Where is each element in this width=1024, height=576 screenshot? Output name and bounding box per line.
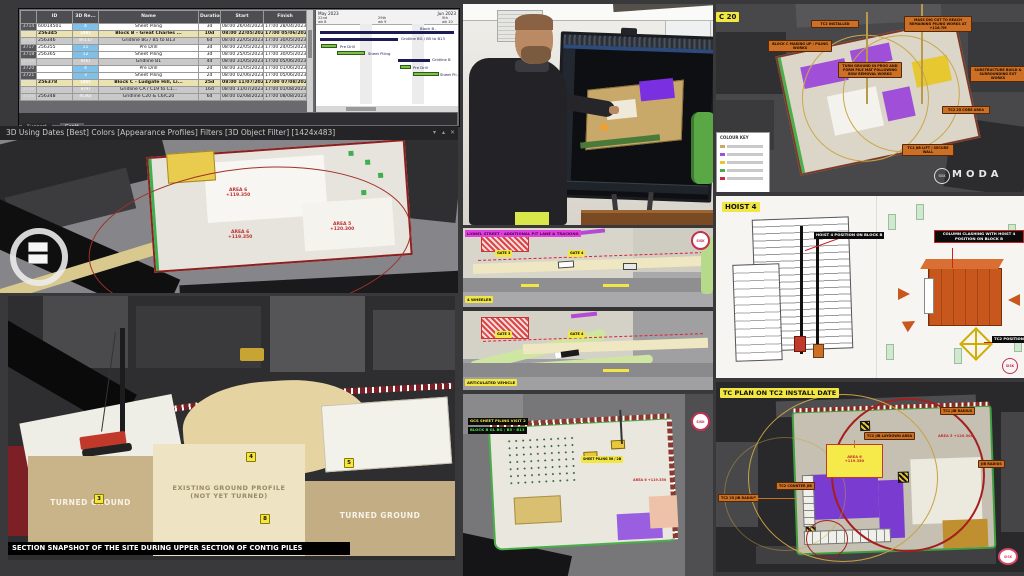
gantt-chart: May 2023 Jun 2023 22ndwk 8 29thwk 9 5thw…	[315, 10, 458, 112]
area-label: AREA 5+120.300	[330, 222, 354, 232]
ground-label: TURNED GROUND	[305, 511, 455, 520]
person-torso	[469, 58, 567, 225]
crane-mast	[866, 12, 868, 104]
plan-banner: LIONEL STREET - ADDITIONAL PIT LANE & TR…	[465, 230, 581, 237]
gantt-tick: 22ndwk 8	[318, 16, 327, 24]
piling-rig	[611, 440, 625, 450]
collage-root: ID 3D Re... Name Duration Start Finish 3…	[0, 0, 1024, 576]
road-marking	[521, 284, 539, 287]
gantt-bar-task[interactable]	[321, 44, 337, 48]
key-line	[727, 153, 763, 156]
visit-label: GCS SHEET PILING VISIT 2	[468, 418, 528, 425]
expand-icon[interactable]: ▴	[442, 126, 445, 140]
hi-vis-trousers	[515, 212, 549, 225]
gantt-bar-summary[interactable]	[320, 38, 398, 41]
gate-label: GATE 3	[495, 331, 512, 338]
gate-label: GATE 4	[568, 250, 585, 257]
pile-mat	[514, 495, 562, 524]
viewport-caption: 3D Using Dates [Best] Colors [Appearance…	[6, 126, 335, 140]
photo-presentation	[463, 4, 713, 225]
road-shape	[1001, 412, 1024, 532]
sisk-ring-logo: SISK	[934, 168, 950, 184]
touchscreen-display	[555, 31, 713, 202]
yellow-laydown-box: AREA 6 +119.350	[826, 444, 883, 478]
nav-button[interactable]	[28, 242, 48, 252]
annotation-label: MASS DIG CUT TO REACH REMAINING PILING W…	[904, 16, 972, 32]
vehicle-type-label: 4 WHEELER	[465, 296, 493, 303]
sisk-logo: SISK	[998, 548, 1018, 565]
plant-dot	[365, 160, 370, 165]
key-line	[727, 177, 763, 180]
schedule-table: ID 3D Re... Name Duration Start Finish 3…	[20, 10, 307, 101]
desk	[581, 210, 713, 225]
plan-title: TC PLAN ON TC2 INSTALL DATE	[720, 388, 839, 398]
column-post	[916, 204, 924, 220]
key-line	[727, 145, 763, 148]
gantt-bar-task[interactable]	[337, 51, 365, 55]
column-post	[888, 214, 896, 230]
tc2-crane-base	[959, 327, 993, 361]
road-marking	[603, 369, 629, 372]
task-row: 3722256378(40)Block C - Ludgate Hill, Li…	[21, 80, 307, 87]
section-caption: SECTION SNAPSHOT OF THE SITE DURING UPPE…	[8, 542, 350, 555]
area-label: AREA 6+119.350	[226, 188, 250, 198]
person-hair	[515, 14, 553, 30]
column-header-finish[interactable]: Finish	[264, 11, 307, 24]
gantt-scrollbar-horizontal[interactable]	[316, 106, 458, 112]
truck-cab	[555, 352, 562, 359]
task-row: 37262563484(36)Gridline C20 & C6/C206d08…	[21, 94, 307, 101]
annotation-label: TC2 JIB LAYDOWN AREA	[864, 432, 915, 440]
turned-ground-left: TURNED GROUND	[28, 456, 153, 552]
piling-label: SHEET PILING 56 / 2B	[581, 456, 623, 463]
screen-purple-zone	[639, 78, 675, 101]
enclosure-top	[920, 259, 1004, 269]
existing-ground-center: EXISTING GROUND PROFILE (NOT YET TURNED)	[153, 444, 305, 556]
column-header-id[interactable]: ID	[37, 11, 73, 24]
viewport-caption-bar: 3D Using Dates [Best] Colors [Appearance…	[0, 126, 458, 140]
annotation-label: TC2 25 JIB RADIUS	[718, 494, 759, 502]
corner-cell	[21, 11, 37, 24]
building-block	[270, 296, 365, 372]
scrollbar-thumb[interactable]	[308, 30, 312, 58]
gantt-bar-label: Pre Drill	[340, 44, 355, 49]
tc-install-plan: AREA 6 +119.350 AREA 5 +120.300 TC1 JIB …	[716, 382, 1024, 572]
gantt-bar-label: Sheet Pil...	[440, 72, 460, 77]
annotation-label: TC2 COUNTER JIB	[776, 482, 815, 490]
column-header-start[interactable]: Start	[221, 11, 264, 24]
swept-plan-bottom: GATE 3 GATE 4 ARTICULATED VEHICLE	[463, 311, 713, 390]
block-b-annex	[732, 263, 782, 362]
task-row: 37213Sheet Piling2d08:00 02/06/202317:00…	[21, 73, 307, 80]
hoist-diagram: HOIST 4 POSITION ON BLOCK B COLUMN CLASH…	[716, 196, 1024, 378]
column-header-res[interactable]: 3D Re...	[73, 11, 99, 24]
piling-rig-mast	[120, 328, 125, 440]
sisk-logo: SISK	[1002, 358, 1018, 374]
building-block	[373, 310, 455, 370]
office-chair	[691, 112, 713, 184]
annotation-label: TC1 JIB RADIUS	[940, 407, 975, 415]
annotation-label: SUBSTRUCTURE BUILD & SURROUNDING EXT WOR…	[970, 66, 1024, 82]
gantt-bar-summary[interactable]	[398, 59, 430, 62]
slab	[321, 397, 452, 473]
gantt-tick: 5thwk 10	[442, 16, 453, 24]
small-radius-circle	[806, 520, 848, 558]
colour-key-title: COLOUR KEY	[720, 135, 749, 140]
column-post	[886, 344, 894, 360]
arrow-right	[898, 288, 910, 300]
sequence-marker: 5	[344, 458, 354, 468]
key-swatch	[720, 177, 725, 180]
site-deck	[488, 417, 678, 550]
hoist-cage	[813, 344, 824, 358]
diagram-split	[876, 196, 877, 378]
hoist-position-label: HOIST 4 POSITION ON BLOCK B	[814, 232, 884, 239]
weekend-stripe	[360, 24, 372, 104]
plant-dot	[378, 173, 383, 178]
task-row: 371725635511Pre Drill3d08:00 22/05/20231…	[21, 45, 307, 52]
annotation-label: TC2 INSTALLED	[811, 20, 859, 28]
hoist-cage	[794, 336, 806, 352]
person-hand	[609, 106, 619, 114]
annotation-label: TC2 25 CORE AREA	[942, 106, 990, 114]
column-header-name[interactable]: Name	[99, 11, 199, 24]
clashing-column	[924, 278, 934, 314]
sisk-logo: SISK	[691, 412, 710, 431]
logistics-plan-tc20: TC2 INSTALLED BLOCK C MAKING UP / PILING…	[716, 4, 1024, 192]
gantt-bar-summary[interactable]	[320, 31, 454, 34]
gantt-bar-label: Gridline BG / B5 to B13	[401, 36, 445, 41]
sisk-logo: SISK	[691, 231, 710, 250]
key-swatch	[720, 169, 725, 172]
excavator	[240, 348, 264, 361]
collapse-icon[interactable]: ▾	[433, 126, 436, 140]
vehicle-type-label: ARTICULATED VEHICLE	[465, 379, 517, 386]
area-label: AREA 6 +119.350	[827, 455, 882, 464]
column-post	[954, 348, 962, 364]
task-row: 371825636512Sheet Piling3d08:00 25/05/20…	[21, 52, 307, 59]
area-label: AREA 6+119.350	[228, 230, 252, 240]
section-view: TURNED GROUND EXISTING GROUND PROFILE (N…	[8, 296, 455, 560]
plant-dot	[348, 151, 353, 156]
area-label: AREA 5 +120.300	[938, 434, 973, 438]
hoist-enclosure	[928, 268, 1002, 326]
task-row: 3714600145014Sheet Piling3d08:00 26/04/2…	[21, 24, 307, 31]
leader-line	[754, 498, 796, 499]
key-swatch	[720, 145, 725, 148]
gate-label: GATE 4	[568, 331, 585, 338]
arrow-up-right	[902, 316, 918, 332]
road-band	[463, 363, 713, 377]
task-row: 37198(6)Gridline B14d08:00 31/05/202317:…	[21, 59, 307, 66]
sheet-tab-bar: Support Gantt	[19, 113, 457, 125]
swept-path-plans: GATE 3 GATE 4 LIONEL STREET - ADDITIONAL…	[463, 228, 713, 390]
key-line	[727, 169, 763, 172]
sequence-marker: 4	[246, 452, 256, 462]
annotation-label: TURN GROUND IN PROG AND FORM PILE MAT FO…	[838, 62, 902, 78]
table-scrollbar-vertical[interactable]	[307, 10, 313, 112]
schedule-window: ID 3D Re... Name Duration Start Finish 3…	[18, 8, 460, 127]
key-swatch	[720, 153, 725, 156]
block-label: BLOCK B GL BG / B5 - B13	[468, 427, 527, 434]
screen-taskbar	[558, 180, 708, 194]
close-icon[interactable]: ✕	[450, 126, 455, 140]
leader-line	[952, 248, 953, 268]
model-viewer-3d: AREA 6+119.350 AREA 6+119.350 AREA 5+120…	[0, 140, 458, 293]
ground-label: TURNED GROUND	[28, 498, 153, 507]
sequence-marker: 3	[94, 494, 104, 504]
nav-button[interactable]	[28, 254, 48, 264]
webcam	[621, 28, 637, 36]
road-band	[463, 278, 713, 292]
person-beard	[521, 46, 551, 64]
annotation-label: BLOCK C MAKING UP / PILING WORKS	[768, 40, 832, 52]
clash-label: COLUMN CLASHING WITH HOIST 4 POSITION ON…	[934, 230, 1024, 243]
task-row: 3715256345(48)Block B - Great Charles ..…	[21, 31, 307, 38]
column-header-duration[interactable]: Duration	[199, 11, 221, 24]
annotation-label: JIB RADIUS	[978, 460, 1005, 468]
gantt-bar-task[interactable]	[413, 72, 439, 76]
swept-plan-top: GATE 3 GATE 4 LIONEL STREET - ADDITIONAL…	[463, 228, 713, 307]
leader-line	[854, 440, 855, 448]
scrollbar-thumb[interactable]	[346, 107, 376, 111]
sequence-marker: 8	[260, 514, 270, 524]
ground-label: EXISTING GROUND PROFILE (NOT YET TURNED)	[153, 484, 305, 500]
pile-grid	[505, 434, 579, 486]
gantt-tick: 29thwk 9	[378, 16, 386, 24]
corner-label: C 20	[716, 12, 739, 22]
task-row: 3716256346B(11)Gridline BG / B5 to B136d…	[21, 38, 307, 45]
tc2-position-label: TC2 POSITION	[992, 336, 1024, 343]
navigation-ring	[10, 228, 68, 286]
hoist-mast	[816, 232, 819, 354]
pink-zone	[649, 495, 679, 528]
gantt-bar-label: Sheet Piling	[368, 51, 390, 56]
arrow-left	[1008, 294, 1020, 306]
road-marking	[603, 284, 629, 287]
piling-visit-plan: SHEET PILING 56 / 2B AREA 6 +119.350 GCS…	[463, 394, 713, 576]
vehicle	[623, 263, 637, 270]
area-label: AREA 6 +119.350	[633, 478, 666, 482]
hoist-title: HOIST 4	[722, 202, 760, 212]
key-swatch	[720, 161, 725, 164]
vehicle	[558, 260, 574, 268]
enclosure-panels	[929, 269, 1001, 325]
moda-logo: MODA	[952, 169, 1003, 180]
gantt-bar-task[interactable]	[400, 65, 411, 69]
gate-label: GATE 3	[495, 250, 512, 257]
annotation-label: TC2 JIB LIFT / SECURE WALL	[902, 144, 954, 156]
gantt-bar-label: Pre Drill	[413, 65, 428, 70]
key-line	[727, 161, 763, 164]
gantt-bar-label: Block B -	[420, 26, 437, 31]
hoist-mast	[800, 226, 803, 354]
task-row: 37238(9)Gridline CA / C19 to C1...16d08:…	[21, 87, 307, 94]
colour-key: COLOUR KEY	[716, 132, 770, 192]
task-row: 37204Pre Drill2d08:00 31/05/202317:00 01…	[21, 66, 307, 73]
gantt-bar-label: Gridline B	[432, 57, 451, 62]
